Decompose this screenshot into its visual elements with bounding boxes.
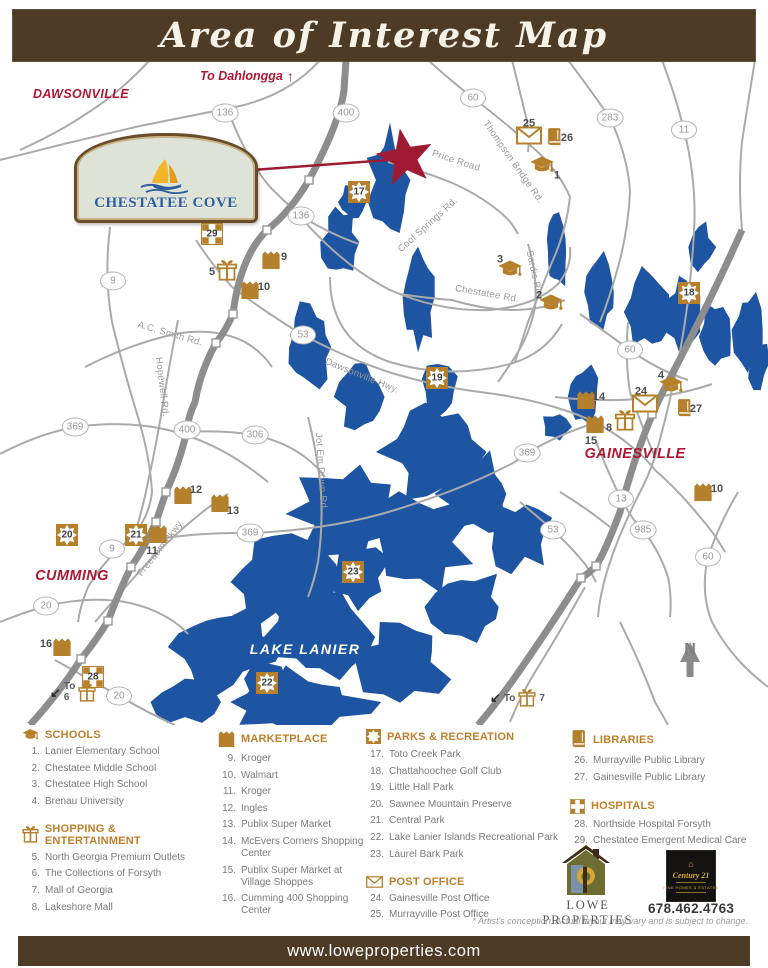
map-marker-market-9: 9 [262, 249, 281, 275]
legend-item: 21.Central Park [366, 815, 568, 827]
map-marker-library-27: 27 [676, 398, 693, 424]
disclaimer: * Artist's conception. Actual layout may… [340, 916, 748, 926]
map-marker-shopping-5: 5 [217, 259, 238, 287]
road-label: Cool Springs Rd. [396, 195, 460, 254]
route-shield-60: 60 [695, 548, 721, 567]
legend-item: 20.Sawnee Mountain Preserve [366, 799, 568, 811]
route-shield-369: 369 [237, 524, 264, 543]
legend-item: 22.Lake Lanier Islands Recreational Park [366, 832, 568, 844]
city-label-cumming: CUMMING [35, 568, 109, 584]
route-shield-60: 60 [617, 341, 643, 360]
century21-tagline: FINE HOMES & ESTATES [663, 885, 718, 890]
map-marker-park-23: 23 [342, 561, 364, 583]
route-shield-136: 136 [288, 207, 315, 226]
sun-icon [366, 729, 381, 744]
legend-section-schools: SCHOOLS 1.Lanier Elementary School 2.Che… [22, 729, 214, 808]
map: LAKE LANIER To Dahlongga ↑ N CHESTATEE C… [0, 62, 768, 725]
century21-house-icon: ⌂ [688, 860, 693, 869]
legend-item: 18.Chattahoochee Golf Club [366, 766, 568, 778]
century21-divider [676, 882, 706, 883]
legend-item: 7.Mall of Georgia [22, 885, 214, 897]
legend-item: 17.Toto Creek Park [366, 749, 568, 761]
hospital-cross-icon [570, 799, 585, 814]
legend-item: 9.Kroger [218, 753, 366, 765]
century21-name: Century 21 [673, 871, 710, 880]
route-shield-13: 13 [608, 490, 634, 509]
map-marker-school-3: 3 [497, 261, 523, 284]
road-label: A.C. Smith Rd. [136, 319, 203, 348]
shopping-bag-icon [218, 729, 235, 748]
compass-label: N [684, 641, 696, 659]
route-shield-53: 53 [290, 326, 316, 345]
route-shield-306: 306 [242, 426, 269, 445]
legend-item: 16.Cumming 400 Shopping Center [218, 893, 366, 917]
gift-box-icon [78, 683, 96, 703]
legend-section-title: SCHOOLS [45, 729, 101, 741]
website-bar[interactable]: www.loweproperties.com [18, 936, 750, 966]
gift-box-icon [22, 825, 39, 844]
century21-divider [676, 892, 706, 893]
legend-item: 3.Chestatee High School [22, 779, 214, 791]
legend-section-title: LIBRARIES [593, 734, 654, 746]
city-label-dawsonville: DAWSONVILLE [33, 87, 129, 101]
sign-name: CHESTATEE COVE [94, 195, 238, 212]
route-shield-9: 9 [99, 540, 125, 559]
website-url[interactable]: www.loweproperties.com [287, 942, 480, 961]
legend-item: 28.Northside Hospital Forsyth [570, 819, 762, 831]
route-shield-400: 400 [174, 421, 201, 440]
map-overlays: LAKE LANIER To Dahlongga ↑ N CHESTATEE C… [0, 62, 768, 725]
map-marker-park-20: 20 [56, 524, 78, 546]
envelope-icon [366, 876, 383, 888]
map-marker-park-17: 17 [348, 181, 370, 203]
route-shield-369: 369 [514, 444, 541, 463]
legend-item: 13.Publix Super Market [218, 819, 366, 831]
route-shield-20: 20 [33, 597, 59, 616]
legend-item: 5.North Georgia Premium Outlets [22, 852, 214, 864]
shopping-bag-icon [149, 523, 168, 544]
legend-item: 15.Publix Super Market at Village Shoppe… [218, 865, 366, 889]
map-marker-library-26: 26 [546, 127, 563, 153]
road-label: Dawsonville Hwy. [324, 356, 401, 396]
legend-section-title: POST OFFICE [389, 876, 465, 888]
map-marker-market-14: 14 [577, 389, 596, 415]
map-marker-post-25: 25 [516, 127, 542, 150]
shopping-bag-icon [586, 413, 605, 434]
route-shield-60: 60 [460, 89, 486, 108]
legend-section-libraries: LIBRARIES 26.Murrayville Public Library … [570, 729, 762, 784]
legend-item: 14.McEvers Corners Shopping Center [218, 836, 366, 860]
route-shield-985: 985 [630, 521, 657, 540]
southwest-arrow-icon: ↙ [50, 685, 61, 701]
shopping-bag-icon [262, 249, 281, 270]
page: Area of Interest Map [0, 0, 768, 968]
legend-item: 12.Ingles [218, 803, 366, 815]
legend-item: 19.Little Hall Park [366, 782, 568, 794]
shopping-bag-icon [53, 636, 72, 657]
legend-item: 23.Laurel Bark Park [366, 849, 568, 861]
route-shield-11: 11 [671, 121, 697, 140]
graduation-cap-icon [22, 729, 39, 741]
road-label: Hopewell Rd. [153, 356, 171, 417]
sailboat-icon [136, 157, 196, 197]
legend-item: 27.Gainesville Public Library [570, 772, 762, 784]
map-marker-park-18: 18 [678, 282, 700, 304]
legend-item: 8.Lakeshore Mall [22, 902, 214, 914]
book-icon [570, 729, 587, 750]
map-marker-park-19: 19 [426, 367, 448, 389]
legend-item: 1.Lanier Elementary School [22, 746, 214, 758]
legend-item: 4.Brenau University [22, 796, 214, 808]
compass: N [684, 640, 696, 659]
legend-column-2: MARKETPLACE 9.Kroger 10.Walmart 11.Kroge… [218, 729, 366, 932]
gift-box-icon [217, 259, 238, 282]
legend-section-title: HOSPITALS [591, 800, 655, 812]
road-label: Price Road [431, 148, 482, 174]
chestatee-cove-sign: CHESTATEE COVE [74, 133, 258, 223]
lowe-properties-logo [562, 845, 610, 897]
map-marker-market-11: 11 [149, 523, 168, 549]
map-marker-market-13: 13 [211, 492, 230, 518]
map-marker-school-2: 2 [538, 295, 564, 318]
legend-section-title: PARKS & RECREATION [387, 731, 514, 743]
title-banner: Area of Interest Map [12, 9, 756, 62]
direction-note-dahlonega: To Dahlongga ↑ [200, 68, 294, 84]
route-shield-53: 53 [540, 521, 566, 540]
legend-section-shopping-entertainment: SHOPPING & ENTERTAINMENT 5.North Georgia… [22, 823, 214, 914]
legend-section-marketplace: MARKETPLACE 9.Kroger 10.Walmart 11.Kroge… [218, 729, 366, 917]
legend-item: 26.Murrayville Public Library [570, 755, 762, 767]
map-marker-market-10: 10 [241, 279, 260, 305]
shopping-bag-icon [241, 279, 260, 300]
map-marker-market-12: 12 [174, 484, 193, 510]
page-title: Area of Interest Map [160, 15, 608, 56]
map-marker-market-10: 10 [694, 481, 713, 507]
legend-section-hospitals: HOSPITALS 28.Northside Hospital Forsyth … [570, 799, 762, 848]
direction-note-7: ↙To7 [490, 688, 545, 708]
envelope-icon [516, 127, 542, 145]
route-shield-9: 9 [100, 272, 126, 291]
route-shield-283: 283 [597, 109, 624, 128]
map-marker-market-16: 16 [53, 636, 72, 662]
century21-logo: ⌂ Century 21 FINE HOMES & ESTATES [666, 850, 716, 902]
route-shield-369: 369 [62, 418, 89, 437]
up-arrow-icon: ↑ [287, 68, 294, 84]
legend-item: 2.Chestatee Middle School [22, 763, 214, 775]
map-marker-market-15: 15 [586, 413, 605, 439]
route-shield-136: 136 [212, 104, 239, 123]
gift-box-icon [518, 688, 536, 708]
map-marker-park-21: 21 [125, 524, 147, 546]
route-shield-400: 400 [333, 104, 360, 123]
legend-section-title: MARKETPLACE [241, 733, 328, 745]
legend-item: 6.The Collections of Forsyth [22, 868, 214, 880]
city-label-gainesville: GAINESVILLE [584, 446, 685, 462]
envelope-icon [632, 395, 658, 413]
legend-item: 11.Kroger [218, 786, 366, 798]
road-label: Jot Em Down Rd. [313, 433, 329, 512]
legend-column-4: LIBRARIES 26.Murrayville Public Library … [570, 729, 762, 862]
road-label: Chestatee Rd. [454, 283, 520, 305]
legend-item: 10.Walmart [218, 770, 366, 782]
lake-label: LAKE LANIER [250, 641, 361, 657]
phone-number: 678.462.4763 [648, 901, 734, 916]
southwest-arrow-icon: ↙ [490, 690, 501, 706]
map-marker-post-24: 24 [632, 395, 658, 418]
shopping-bag-icon [694, 481, 713, 502]
direction-note-6: ↙To6 [50, 682, 96, 703]
graduation-cap-icon [529, 157, 555, 175]
direction-note-text: To Dahlongga [200, 69, 283, 83]
route-shield-20: 20 [106, 687, 132, 706]
map-marker-hospital-29: 29 [201, 223, 223, 245]
map-marker-school-1: 1 [529, 157, 555, 180]
legend-column-1: SCHOOLS 1.Lanier Elementary School 2.Che… [22, 729, 214, 929]
map-marker-school-4: 4 [658, 377, 684, 400]
map-marker-park-22: 22 [256, 672, 278, 694]
legend-section-parks-recreation: PARKS & RECREATION 17.Toto Creek Park 18… [366, 729, 568, 861]
legend-section-title: SHOPPING & ENTERTAINMENT [45, 823, 214, 847]
